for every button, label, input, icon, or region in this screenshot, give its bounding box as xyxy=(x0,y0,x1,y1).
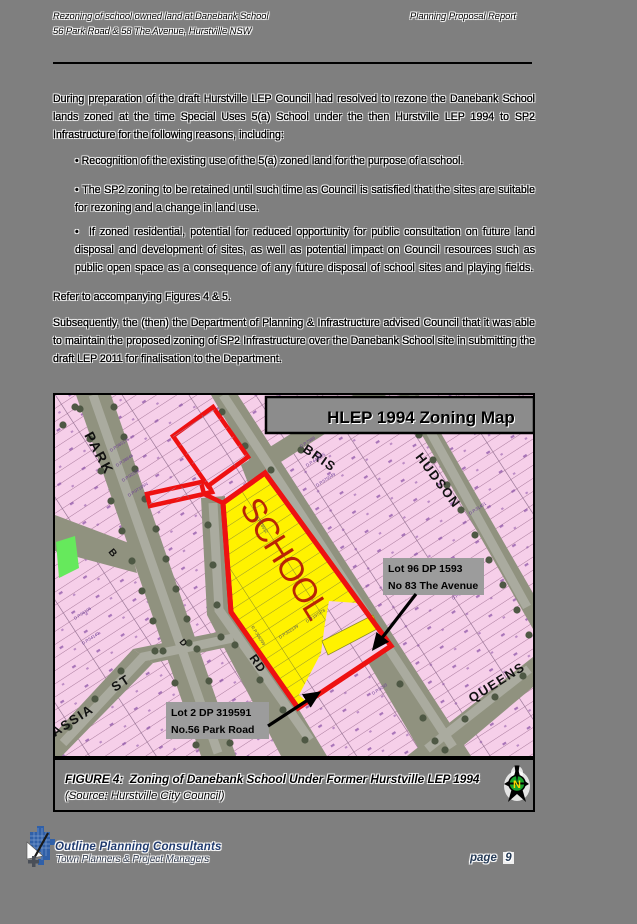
svg-text:N: N xyxy=(513,779,521,791)
svg-text:No 83 The Avenue: No 83 The Avenue xyxy=(388,580,478,592)
svg-text:HLEP 1994 Zoning Map: HLEP 1994 Zoning Map xyxy=(327,408,515,427)
svg-text:Lot 2 DP 319591: Lot 2 DP 319591 xyxy=(171,707,252,719)
svg-text:Lot 96 DP 1593: Lot 96 DP 1593 xyxy=(388,563,463,575)
svg-text:No.56 Park Road: No.56 Park Road xyxy=(171,724,254,736)
